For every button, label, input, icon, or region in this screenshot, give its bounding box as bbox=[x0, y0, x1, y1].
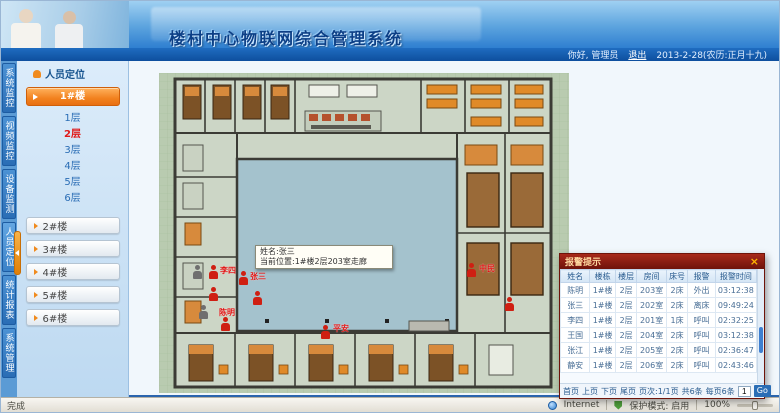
cell: 202室 bbox=[637, 298, 666, 313]
zoom-slider-thumb[interactable] bbox=[752, 401, 758, 410]
person-marker-label: 张三 bbox=[250, 271, 266, 282]
pagination-per-page: 每页6条 bbox=[706, 386, 735, 397]
header-photo bbox=[1, 1, 129, 48]
statusbar-divider bbox=[696, 400, 697, 410]
cell: 2床 bbox=[666, 343, 688, 358]
logout-link[interactable]: 退出 bbox=[628, 48, 646, 61]
cell: 2床 bbox=[666, 298, 688, 313]
cell: 李四 bbox=[561, 313, 590, 328]
expand-arrow-icon bbox=[34, 269, 38, 275]
floor-list: 1层 2层 3层 4层 5层 6层 bbox=[17, 109, 128, 211]
cell: 02:32:25 bbox=[715, 313, 756, 328]
floor-item-1[interactable]: 1层 bbox=[17, 111, 128, 127]
alarm-popup-title: 报警提示 bbox=[565, 255, 601, 268]
pagination-prev[interactable]: 上页 bbox=[582, 386, 598, 397]
person-icon bbox=[33, 70, 41, 78]
col-alarm: 报警 bbox=[688, 270, 715, 283]
building-button-1-label: 1#楼 bbox=[60, 91, 85, 102]
expand-arrow-icon bbox=[34, 223, 38, 229]
table-row[interactable]: 李四1#楼2层201室1床呼叫02:32:25 bbox=[561, 313, 757, 328]
nav-tab-device-monitor[interactable]: 设备监测 bbox=[2, 169, 16, 219]
header-user-strip: 你好, 管理员 退出 2013-2-28(农历:正月十九) bbox=[1, 48, 779, 61]
cell: 02:43:46 bbox=[715, 358, 756, 373]
pagination-bar: 首页 上页 下页 尾页 页次:1/1页 共6条 每页6条 Go bbox=[560, 383, 764, 398]
building-button-3[interactable]: 3#楼 bbox=[26, 240, 120, 257]
pagination-total: 共6条 bbox=[682, 386, 703, 397]
building-button-5-label: 5#楼 bbox=[43, 287, 68, 302]
floor-item-4[interactable]: 4层 bbox=[17, 159, 128, 175]
person-marker[interactable] bbox=[321, 325, 330, 339]
cell: 呼叫 bbox=[688, 328, 715, 343]
cell: 1#楼 bbox=[590, 283, 615, 298]
cell: 呼叫 bbox=[688, 343, 715, 358]
cell: 外出 bbox=[688, 283, 715, 298]
building-button-4-label: 4#楼 bbox=[43, 264, 68, 279]
cell: 2层 bbox=[615, 343, 637, 358]
nav-tab-reports[interactable]: 统计报表 bbox=[2, 275, 16, 325]
person-marker[interactable] bbox=[209, 287, 218, 301]
person-marker-label: 平安 bbox=[333, 323, 349, 334]
date-display: 2013-2-28(农历:正月十九) bbox=[656, 48, 767, 61]
pagination-next[interactable]: 下页 bbox=[601, 386, 617, 397]
status-bar: 完成 Internet 保护模式: 启用 100% bbox=[1, 397, 779, 412]
person-info-tooltip: 姓名:张三 当前位置:1#楼2层203室走廊 bbox=[255, 245, 393, 269]
vertical-nav: 系统监控 视频监控 设备监测 人员定位 统计报表 系统管理 bbox=[1, 61, 17, 397]
building-button-2-label: 2#楼 bbox=[43, 218, 68, 233]
person-marker-label: 李四 bbox=[220, 265, 236, 276]
protected-mode-icon bbox=[614, 401, 622, 410]
alarm-table: 姓名 楼栋 楼层 房间 床号 报警 报警时间 陈明1#楼2层203室2床外出03… bbox=[560, 269, 757, 373]
photo-person1-head bbox=[19, 9, 33, 23]
cell: 陈明 bbox=[561, 283, 590, 298]
cell: 1#楼 bbox=[590, 313, 615, 328]
cell: 03:12:38 bbox=[715, 283, 756, 298]
person-marker[interactable] bbox=[199, 305, 208, 319]
page-number-input[interactable] bbox=[738, 386, 751, 397]
cell: 2床 bbox=[666, 283, 688, 298]
col-bed: 床号 bbox=[666, 270, 688, 283]
table-row[interactable]: 静安1#楼2层206室2床呼叫02:43:46 bbox=[561, 358, 757, 373]
person-marker[interactable] bbox=[467, 263, 476, 277]
col-room: 房间 bbox=[637, 270, 666, 283]
pagination-info: 页次:1/1页 bbox=[639, 386, 679, 397]
protected-mode-label: 保护模式: 启用 bbox=[629, 399, 689, 412]
internet-zone-label: Internet bbox=[564, 400, 600, 410]
tooltip-name: 姓名:张三 bbox=[260, 247, 388, 257]
cell: 2层 bbox=[615, 328, 637, 343]
cell: 203室 bbox=[637, 283, 666, 298]
header: 楼村中心物联网综合管理系统 你好, 管理员 退出 2013-2-28(农历:正月… bbox=[1, 1, 779, 61]
header-banner: 楼村中心物联网综合管理系统 bbox=[1, 1, 779, 48]
pagination-first[interactable]: 首页 bbox=[563, 386, 579, 397]
popup-scrollbar-thumb[interactable] bbox=[759, 327, 763, 353]
building-button-5[interactable]: 5#楼 bbox=[26, 286, 120, 303]
floor-item-3[interactable]: 3层 bbox=[17, 143, 128, 159]
building-button-2[interactable]: 2#楼 bbox=[26, 217, 120, 234]
cell: 1#楼 bbox=[590, 298, 615, 313]
cell: 201室 bbox=[637, 313, 666, 328]
table-row[interactable]: 张三1#楼2层202室2床离床09:49:24 bbox=[561, 298, 757, 313]
expand-arrow-icon bbox=[34, 246, 38, 252]
cell: 王国 bbox=[561, 328, 590, 343]
status-done-text: 完成 bbox=[7, 399, 25, 412]
cell: 张江 bbox=[561, 343, 590, 358]
alarm-table-header-row: 姓名 楼栋 楼层 房间 床号 报警 报警时间 bbox=[561, 270, 757, 283]
table-row[interactable]: 王国1#楼2层204室2床呼叫03:12:38 bbox=[561, 328, 757, 343]
app-window: 楼村中心物联网综合管理系统 你好, 管理员 退出 2013-2-28(农历:正月… bbox=[0, 0, 780, 413]
cell: 09:49:24 bbox=[715, 298, 756, 313]
sidebar-collapse-handle[interactable] bbox=[14, 231, 21, 275]
person-marker[interactable] bbox=[239, 271, 248, 285]
pagination-last[interactable]: 尾页 bbox=[620, 386, 636, 397]
page-title: 楼村中心物联网综合管理系统 bbox=[169, 25, 403, 48]
cell: 呼叫 bbox=[688, 358, 715, 373]
nav-tab-video-monitor[interactable]: 视频监控 bbox=[2, 116, 16, 166]
alarm-popup: 报警提示 × 姓名 楼栋 楼层 房间 床号 报警 报警时间 bbox=[559, 253, 765, 399]
nav-tab-settings[interactable]: 系统管理 bbox=[2, 328, 16, 378]
sidebar: 人员定位 1#楼 1层 2层 3层 4层 5层 6层 2#楼 3#楼 4#楼 bbox=[17, 61, 129, 397]
cell: 2层 bbox=[615, 283, 637, 298]
sidebar-panel-title-label: 人员定位 bbox=[45, 66, 85, 81]
cell: 206室 bbox=[637, 358, 666, 373]
cell: 2床 bbox=[666, 358, 688, 373]
floor-plan-svg bbox=[159, 73, 569, 393]
floor-item-6[interactable]: 6层 bbox=[17, 191, 128, 207]
sidebar-panel-title: 人员定位 bbox=[17, 61, 128, 85]
table-row[interactable]: 张江1#楼2层205室2床呼叫02:36:47 bbox=[561, 343, 757, 358]
go-button[interactable]: Go bbox=[754, 385, 771, 397]
cell: 张三 bbox=[561, 298, 590, 313]
person-marker[interactable] bbox=[193, 265, 202, 279]
internet-zone-icon bbox=[548, 401, 557, 410]
table-row[interactable]: 陈明1#楼2层203室2床外出03:12:38 bbox=[561, 283, 757, 298]
status-bar-right: Internet 保护模式: 启用 100% bbox=[548, 399, 773, 412]
building-button-1[interactable]: 1#楼 bbox=[26, 87, 120, 106]
person-marker-label: 中民 bbox=[479, 263, 495, 274]
photo-person2-body bbox=[55, 24, 83, 48]
nav-tab-system-monitor[interactable]: 系统监控 bbox=[2, 63, 16, 113]
person-marker[interactable] bbox=[209, 265, 218, 279]
col-name: 姓名 bbox=[561, 270, 590, 283]
cell: 2层 bbox=[615, 298, 637, 313]
cell: 204室 bbox=[637, 328, 666, 343]
zoom-slider[interactable] bbox=[737, 404, 773, 407]
building-button-6-label: 6#楼 bbox=[43, 310, 68, 325]
floor-item-5[interactable]: 5层 bbox=[17, 175, 128, 191]
cell: 1#楼 bbox=[590, 343, 615, 358]
cell: 2床 bbox=[666, 328, 688, 343]
cell: 2层 bbox=[615, 358, 637, 373]
user-greeting: 你好, 管理员 bbox=[568, 48, 619, 61]
col-building: 楼栋 bbox=[590, 270, 615, 283]
cell: 1#楼 bbox=[590, 328, 615, 343]
building-button-3-label: 3#楼 bbox=[43, 241, 68, 256]
close-icon[interactable]: × bbox=[750, 256, 759, 267]
statusbar-divider bbox=[606, 400, 607, 410]
expand-arrow-icon bbox=[34, 292, 38, 298]
cell: 02:36:47 bbox=[715, 343, 756, 358]
col-time: 报警时间 bbox=[715, 270, 756, 283]
building-button-4[interactable]: 4#楼 bbox=[26, 263, 120, 280]
building-button-6[interactable]: 6#楼 bbox=[26, 309, 120, 326]
zoom-level: 100% bbox=[704, 400, 730, 410]
person-marker[interactable] bbox=[221, 317, 230, 331]
popup-scrollbar[interactable] bbox=[757, 269, 764, 383]
photo-person1-body bbox=[11, 23, 41, 48]
expand-arrow-icon bbox=[33, 94, 38, 100]
cell: 呼叫 bbox=[688, 313, 715, 328]
cell: 1床 bbox=[666, 313, 688, 328]
tooltip-location: 当前位置:1#楼2层203室走廊 bbox=[260, 257, 388, 267]
floor-item-2-selected[interactable]: 2层 bbox=[17, 127, 128, 143]
alarm-popup-titlebar: 报警提示 × bbox=[560, 254, 764, 269]
expand-arrow-icon bbox=[34, 315, 38, 321]
person-marker[interactable] bbox=[505, 297, 514, 311]
cell: 205室 bbox=[637, 343, 666, 358]
cell: 离床 bbox=[688, 298, 715, 313]
col-floor: 楼层 bbox=[615, 270, 637, 283]
person-marker[interactable] bbox=[253, 291, 262, 305]
cell: 2层 bbox=[615, 313, 637, 328]
photo-person2-head bbox=[63, 11, 76, 24]
cell: 1#楼 bbox=[590, 358, 615, 373]
cell: 静安 bbox=[561, 358, 590, 373]
cell: 03:12:38 bbox=[715, 328, 756, 343]
floor-plan: 李四 张三 陈明 平安 中民 姓名:张三 当前位置:1#楼2层203室走廊 bbox=[159, 73, 569, 393]
alarm-table-container: 姓名 楼栋 楼层 房间 床号 报警 报警时间 陈明1#楼2层203室2床外出03… bbox=[560, 269, 764, 383]
